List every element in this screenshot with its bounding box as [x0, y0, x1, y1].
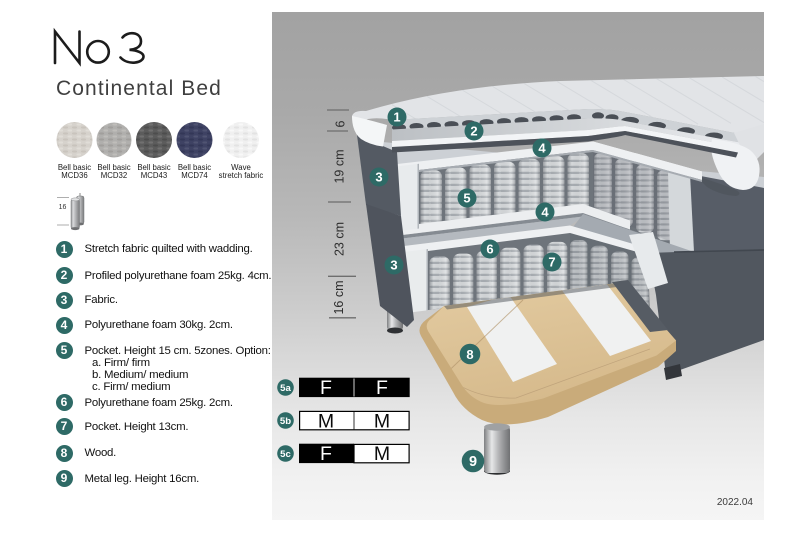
svg-text:23 cm: 23 cm [332, 222, 346, 256]
svg-text:1: 1 [393, 110, 400, 125]
svg-text:3: 3 [375, 170, 382, 185]
svg-text:F: F [320, 443, 332, 465]
svg-text:5: 5 [463, 191, 470, 206]
svg-text:2: 2 [470, 124, 477, 139]
svg-text:M: M [374, 411, 390, 433]
svg-text:M: M [318, 411, 334, 433]
svg-text:9: 9 [469, 454, 477, 470]
svg-text:6: 6 [333, 120, 347, 127]
svg-text:M: M [374, 443, 390, 465]
svg-text:19 cm: 19 cm [332, 149, 346, 183]
svg-text:F: F [376, 377, 388, 399]
svg-text:6: 6 [486, 242, 493, 257]
svg-text:F: F [320, 377, 332, 399]
svg-text:5b: 5b [280, 416, 291, 427]
svg-text:16 cm: 16 cm [332, 280, 346, 314]
svg-text:5c: 5c [280, 449, 291, 460]
svg-text:5a: 5a [280, 383, 291, 394]
svg-text:7: 7 [548, 255, 555, 270]
svg-text:4: 4 [538, 141, 546, 156]
svg-text:3: 3 [390, 258, 397, 273]
svg-text:4: 4 [541, 205, 549, 220]
svg-text:8: 8 [466, 347, 473, 362]
